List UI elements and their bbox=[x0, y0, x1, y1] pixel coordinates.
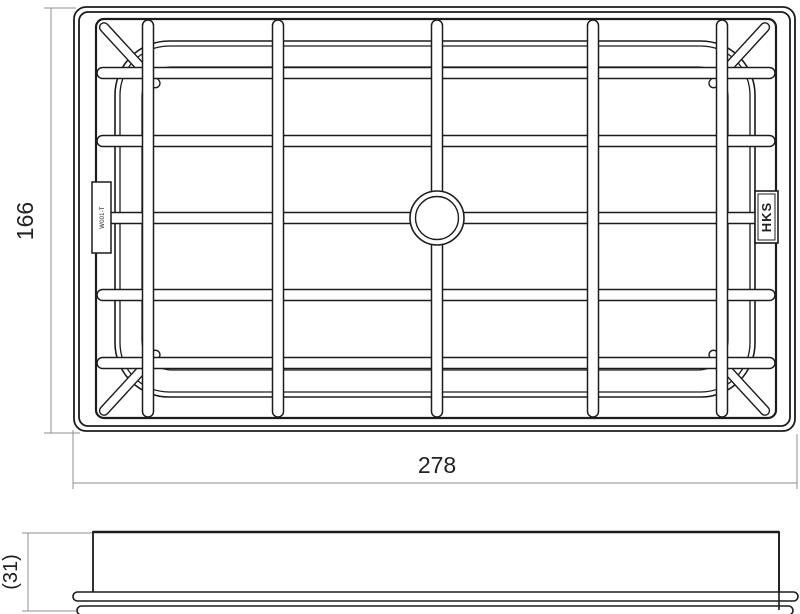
thickness-dimension-value: (31) bbox=[0, 554, 22, 590]
dimension-height: 166 bbox=[12, 8, 80, 433]
side-body bbox=[93, 532, 779, 593]
grid-bar-v5 bbox=[717, 20, 728, 417]
height-dimension-value: 166 bbox=[12, 202, 38, 240]
side-flange-upper bbox=[73, 592, 798, 601]
air-filter-dimensional-drawing: W001-T HKS 166 278 (31) bbox=[0, 0, 800, 614]
grid-bar-v4 bbox=[588, 20, 599, 417]
side-view bbox=[73, 532, 798, 614]
dimension-width: 278 bbox=[73, 430, 797, 489]
center-hole bbox=[410, 191, 465, 246]
brand-logo-text: HKS bbox=[759, 202, 774, 232]
part-label-text: W001-T bbox=[100, 206, 106, 229]
side-flange-lower bbox=[77, 606, 793, 614]
brand-logo-box: HKS bbox=[755, 191, 778, 243]
width-dimension-value: 278 bbox=[418, 452, 456, 478]
plan-view: W001-T HKS bbox=[74, 7, 795, 431]
part-label-tab: W001-T bbox=[92, 182, 111, 253]
grid-bar-v1 bbox=[143, 20, 154, 417]
grid-bar-v2 bbox=[273, 20, 284, 417]
